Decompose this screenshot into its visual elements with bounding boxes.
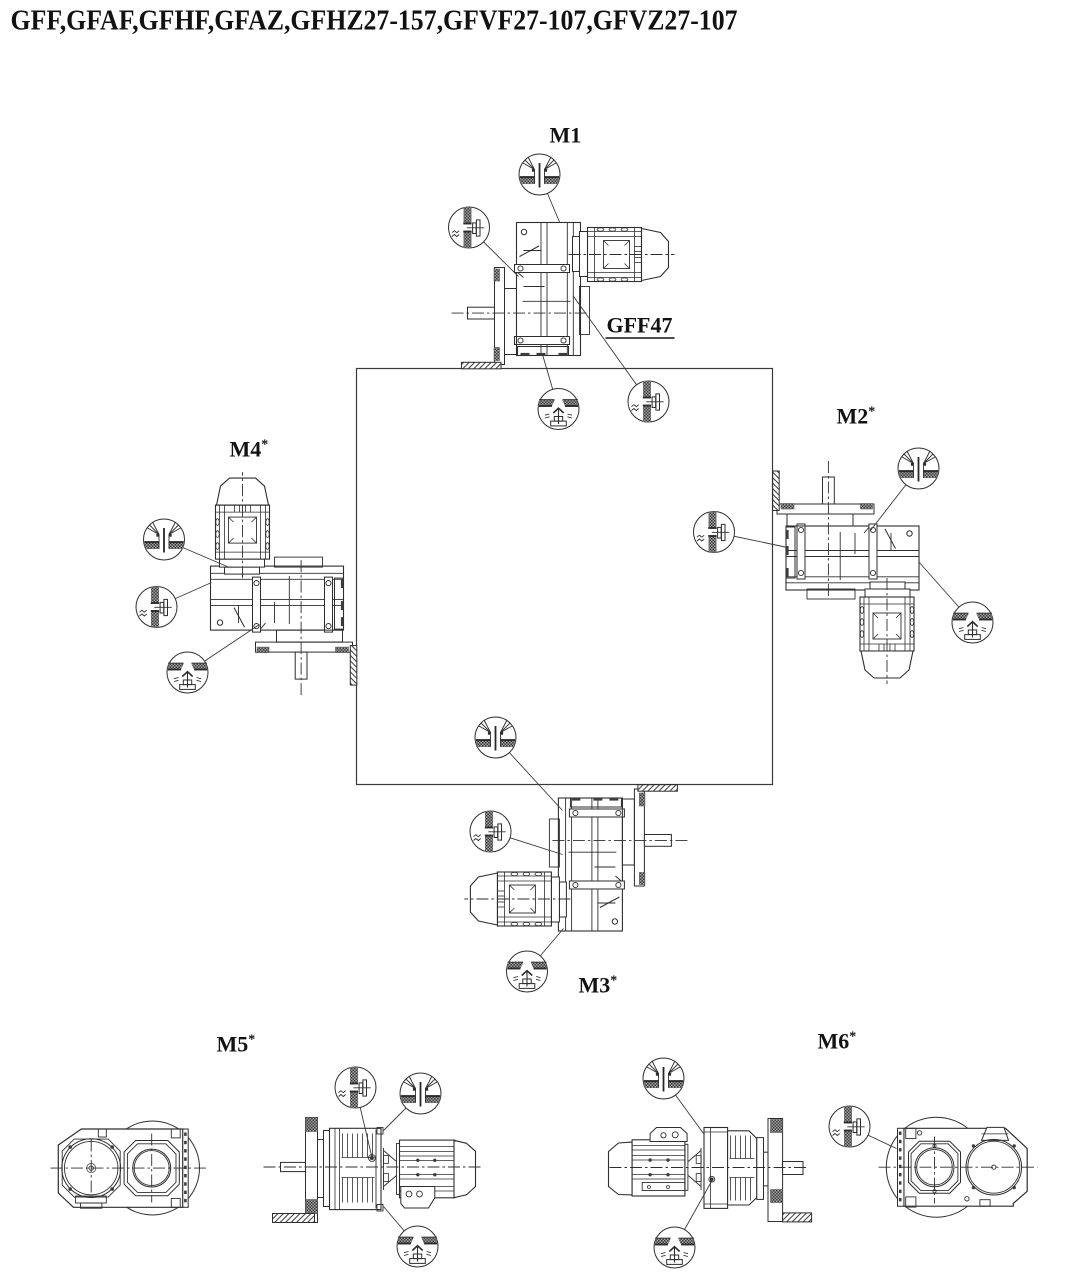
svg-text:M4*: M4* bbox=[230, 437, 269, 462]
svg-text:M1: M1 bbox=[550, 123, 582, 148]
svg-text:GFF,GFAF,GFHF,GFAZ,GFHZ27-157,: GFF,GFAF,GFHF,GFAZ,GFHZ27-157,GFVF27-107… bbox=[11, 6, 738, 37]
svg-text:M6*: M6* bbox=[818, 1029, 857, 1054]
svg-text:M5*: M5* bbox=[217, 1032, 256, 1057]
svg-text:M3*: M3* bbox=[579, 973, 618, 998]
svg-text:GFF47: GFF47 bbox=[607, 313, 673, 338]
svg-text:M2*: M2* bbox=[837, 404, 876, 429]
